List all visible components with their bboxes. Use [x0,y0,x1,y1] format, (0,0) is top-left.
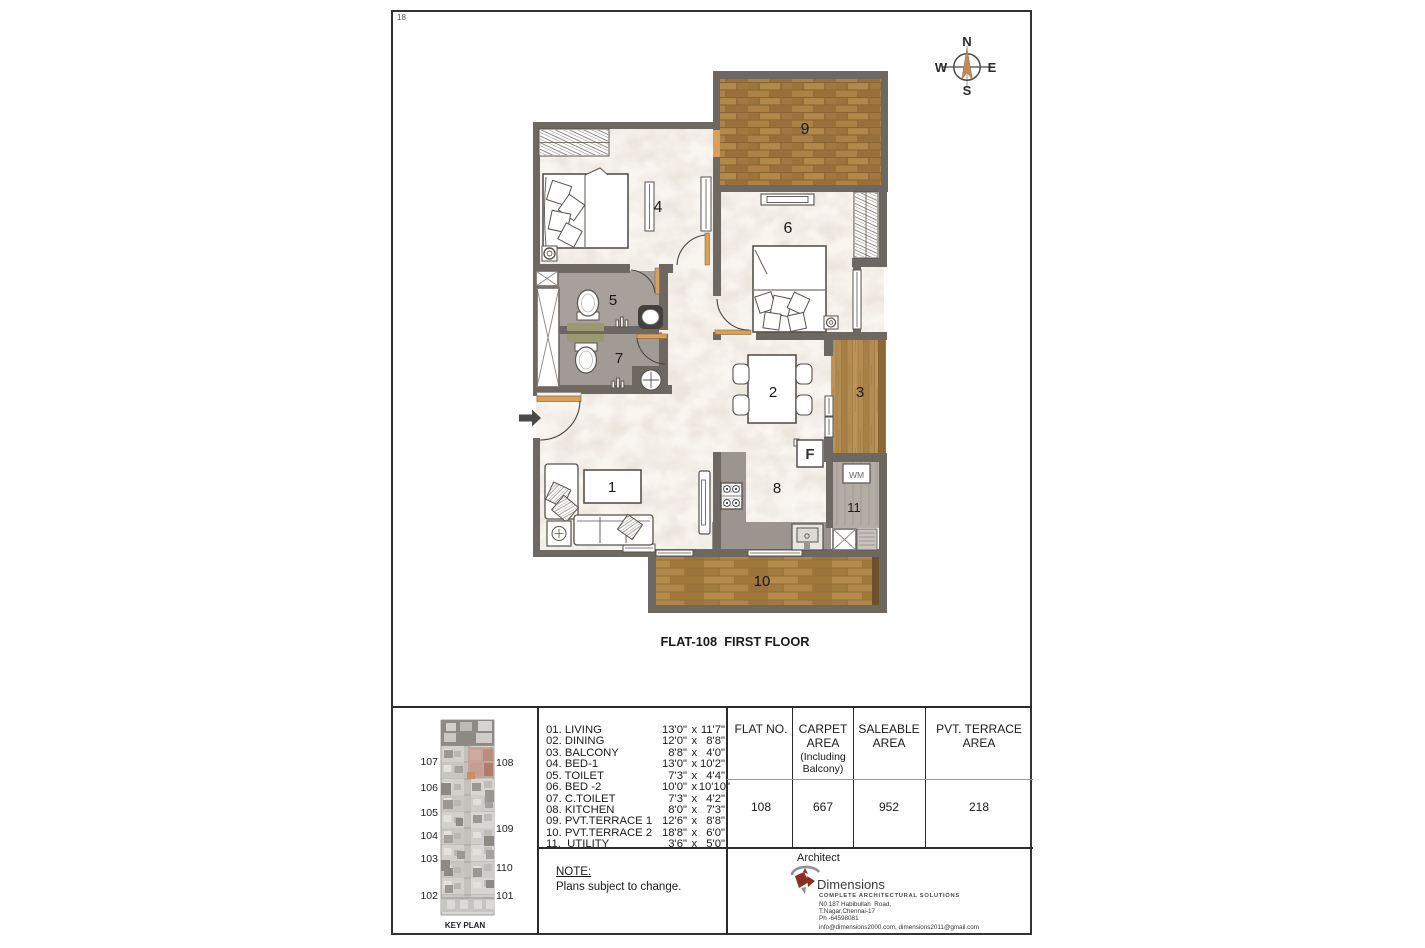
svg-text:3: 3 [856,384,864,401]
svg-text:2: 2 [769,384,777,401]
svg-text:5: 5 [609,292,617,309]
svg-text:4: 4 [654,199,663,216]
svg-text:WM: WM [849,470,864,480]
svg-text:8: 8 [773,480,781,497]
svg-text:7: 7 [615,350,623,367]
svg-text:10: 10 [754,573,771,590]
svg-text:6: 6 [784,220,793,237]
svg-text:1: 1 [608,479,616,496]
svg-text:11: 11 [847,500,861,515]
svg-text:F: F [805,446,814,463]
svg-text:S: S [963,83,972,98]
svg-text:E: E [988,60,997,75]
svg-text:9: 9 [801,121,810,138]
svg-text:W: W [935,60,948,75]
svg-text:N: N [962,34,971,49]
